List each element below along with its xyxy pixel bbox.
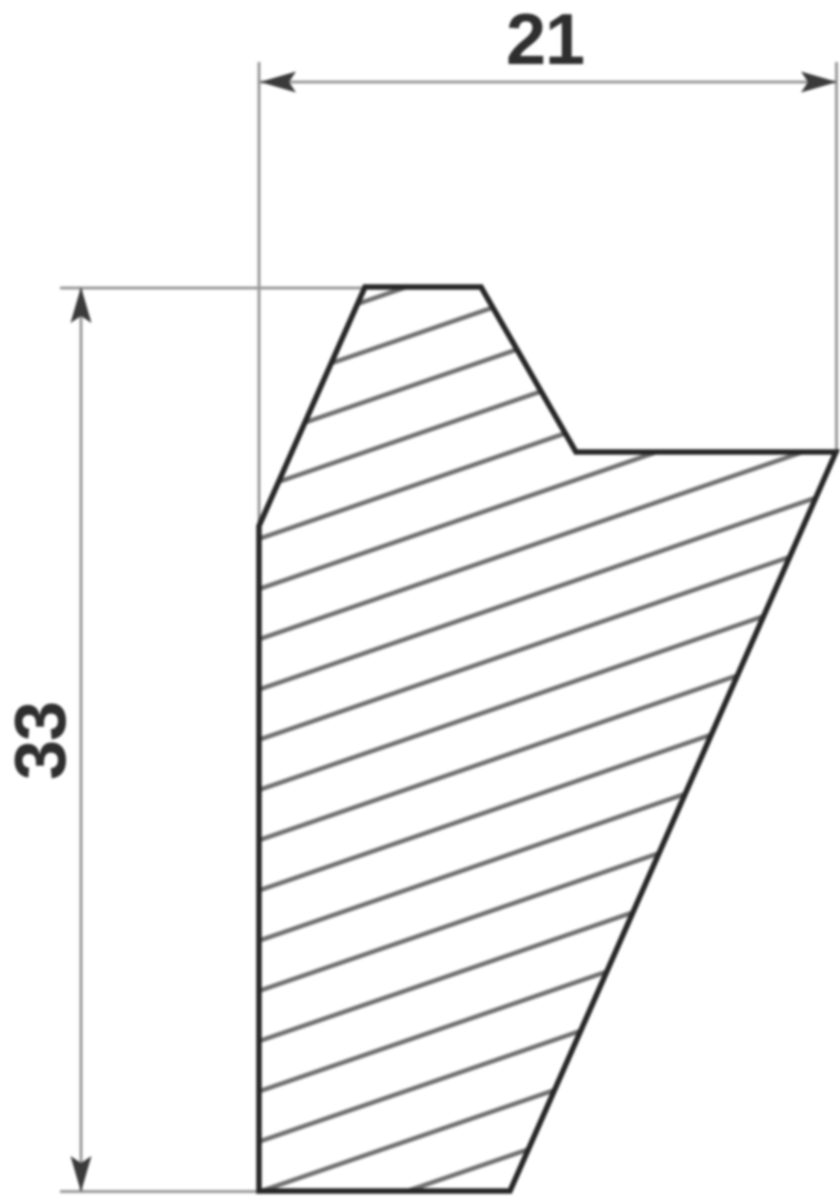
width-dimension-value: 21 bbox=[506, 0, 584, 80]
technical-drawing: 21 33 bbox=[0, 0, 840, 1200]
height-dimension-value: 33 bbox=[1, 702, 81, 780]
